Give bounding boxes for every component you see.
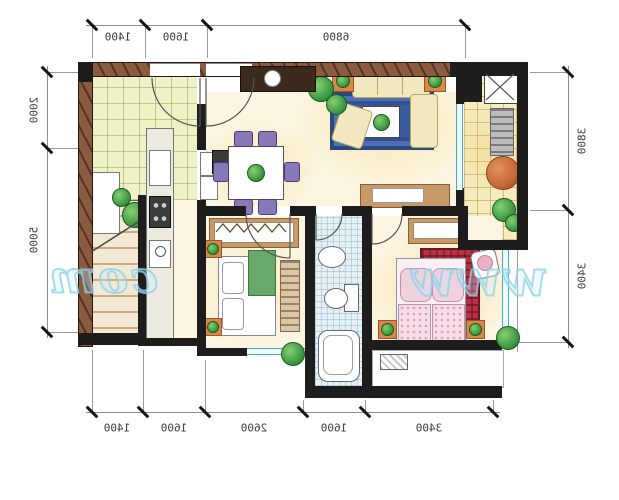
dim-label-bottom-5: 3400 xyxy=(416,422,443,435)
master-lamp-1 xyxy=(381,323,394,336)
dim-line-bottom xyxy=(86,412,500,413)
entry-door-opening xyxy=(150,63,200,76)
dim-ext xyxy=(47,332,78,333)
bathroom-sink xyxy=(318,246,346,268)
bedroom2-notch-wall xyxy=(197,348,247,356)
dining-chair-top-2 xyxy=(258,131,277,147)
dim-ext xyxy=(92,350,93,412)
bay-ac-plate xyxy=(380,354,408,370)
tv-unit xyxy=(372,188,424,203)
dim-ext xyxy=(47,72,78,73)
bedroom2-wardrobe-inner xyxy=(214,222,294,243)
living-plant-2 xyxy=(326,94,347,115)
left-wall-top-cap xyxy=(78,62,92,82)
bedroom2-pillow-2 xyxy=(222,298,244,330)
coffee-table-plant xyxy=(373,114,390,131)
dining-chair-top-1 xyxy=(234,131,253,147)
master-plant xyxy=(496,326,520,350)
entry-dining-wall-upper xyxy=(197,104,206,150)
balcony-water-heater xyxy=(490,108,514,156)
bedroom2-lamp-1 xyxy=(207,243,219,255)
bottom-outer-wall xyxy=(305,386,502,398)
sideboard-bowl xyxy=(264,70,281,87)
dim-label-bottom-1: 1400 xyxy=(104,422,131,435)
dim-label-right-1: 3800 xyxy=(576,128,589,155)
balcony-glass-door xyxy=(456,104,463,190)
master-pillow-2 xyxy=(432,268,464,302)
stair-kitchen-wall xyxy=(138,195,146,345)
master-lamp-2 xyxy=(469,323,482,336)
dim-ext xyxy=(530,72,568,73)
dim-ext xyxy=(207,25,208,58)
bathroom-plant xyxy=(281,342,305,366)
dim-label-bottom-2: 1600 xyxy=(161,422,188,435)
master-bottom-wall xyxy=(362,340,502,350)
living-balcony-wall-bottom xyxy=(456,188,464,210)
dim-label-bottom-3: 2600 xyxy=(241,422,268,435)
dim-ext xyxy=(92,25,93,58)
dining-chair-left xyxy=(213,162,229,182)
dim-label-top-2: 1600 xyxy=(163,31,190,44)
right-wall-upper xyxy=(517,62,528,250)
middle-wall-seg1 xyxy=(197,206,246,216)
kitchen-stove xyxy=(149,196,171,228)
dim-ext xyxy=(465,25,466,58)
master-duvet-right xyxy=(432,304,465,344)
dim-label-left-2: 5000 xyxy=(28,227,41,254)
dim-ext xyxy=(530,210,568,211)
bathtub-inner xyxy=(323,335,353,375)
bedroom2-green-blanket xyxy=(248,250,276,296)
dim-label-right-2: 3400 xyxy=(576,263,589,290)
toilet-bowl xyxy=(324,288,348,309)
master-duvet-left xyxy=(398,304,431,344)
master-wardrobe-inner xyxy=(413,222,459,239)
floor-plan-canvas: 1400 1600 6800 1400 1600 2600 1600 3400 … xyxy=(0,0,619,500)
floor-drain xyxy=(484,72,518,104)
bathroom-master-wall xyxy=(362,206,372,396)
dim-label-top-3: 6800 xyxy=(323,31,350,44)
chaise-sofa xyxy=(410,94,438,148)
dim-label-bottom-4: 1600 xyxy=(321,422,348,435)
dim-line-right xyxy=(568,66,569,348)
dining-chair-bottom-2 xyxy=(258,199,277,215)
balcony-shaft xyxy=(458,62,482,102)
dining-chair-right xyxy=(284,162,300,182)
kitchen-oven-dial xyxy=(155,246,166,257)
left-wall xyxy=(78,62,93,347)
bedroom2-lamp-2 xyxy=(207,321,219,333)
kitchen-sink xyxy=(149,150,171,186)
bedroom2-left-wall xyxy=(197,200,206,356)
dim-ext xyxy=(205,360,206,412)
dim-ext xyxy=(143,350,144,412)
bedroom2-dresser xyxy=(280,260,300,332)
balcony-pot-plant xyxy=(486,156,520,190)
kitchen-bottom-wall xyxy=(138,338,200,346)
bedroom2-pillow-1 xyxy=(222,262,244,294)
stair-block-bottom-wall xyxy=(78,333,142,345)
dining-table-plant xyxy=(247,164,265,182)
dim-line-left xyxy=(47,66,48,338)
dim-label-left-1: 2000 xyxy=(28,97,41,124)
dim-ext xyxy=(145,25,146,58)
master-pillow-1 xyxy=(400,268,432,302)
bedroom2-bathroom-wall xyxy=(305,206,315,396)
dim-label-top-1: 1400 xyxy=(105,31,132,44)
